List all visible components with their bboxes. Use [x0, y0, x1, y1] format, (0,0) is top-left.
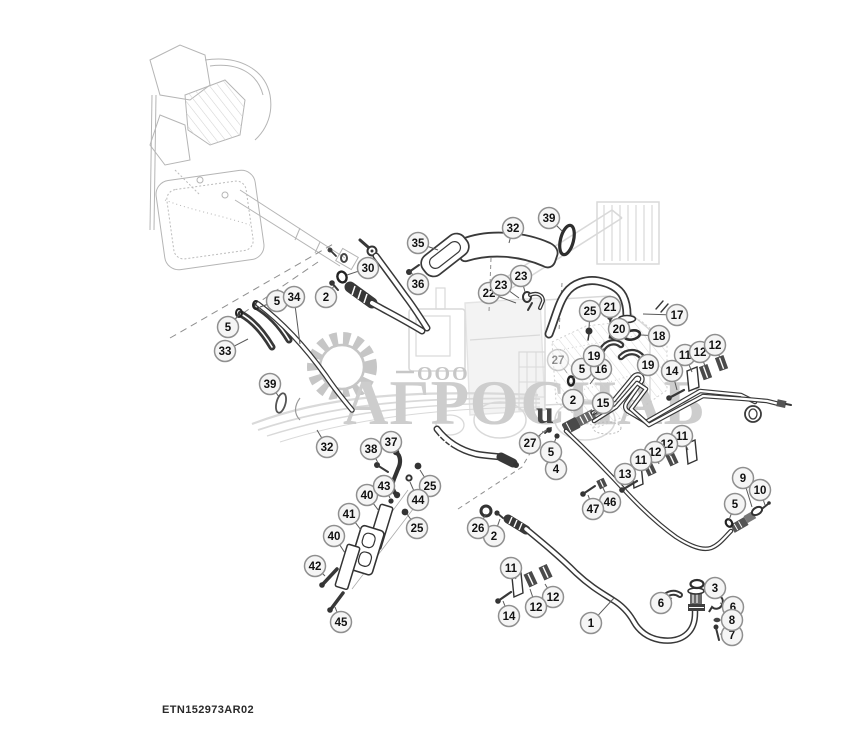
diagram-canvas: ООО АГРОСНАБ u: [0, 0, 841, 731]
callout-number: 41: [343, 509, 356, 521]
callout-number: 27: [552, 355, 565, 367]
callout-leader: [420, 470, 424, 477]
callout-20: 20: [609, 319, 630, 340]
washer-5: [554, 433, 559, 438]
callout-number: 23: [515, 271, 528, 283]
nut-43: [388, 498, 393, 503]
callout-number: 40: [361, 490, 374, 502]
callout-11: 11: [501, 558, 522, 580]
callout-number: 25: [411, 523, 424, 535]
callout-19: 19: [584, 346, 606, 367]
callout-leader: [603, 488, 605, 493]
callout-2: 2: [316, 286, 337, 308]
callout-3: 3: [704, 578, 726, 599]
rod-45: [331, 593, 343, 609]
callout-39: 39: [260, 374, 281, 398]
callout-leader: [503, 601, 505, 606]
callout-number: 6: [658, 598, 664, 610]
callout-number: 1: [588, 618, 595, 630]
callout-42: 42: [305, 556, 326, 577]
callout-leader: [410, 482, 414, 490]
callout-number: 5: [274, 296, 281, 308]
clamp-plate-11: [687, 367, 699, 391]
callout-number: 37: [385, 437, 398, 449]
callout-number: 42: [309, 561, 322, 573]
callout-number: 4: [553, 464, 560, 476]
callout-45: 45: [331, 607, 352, 633]
callout-5: 5: [725, 494, 746, 521]
callout-number: 25: [424, 481, 437, 493]
nut-25: [415, 463, 422, 470]
callout-1: 1: [581, 598, 615, 634]
callout-number: 17: [671, 310, 684, 322]
callout-36: 36: [408, 272, 429, 295]
callout-number: 8: [729, 615, 736, 627]
callout-number: 2: [323, 292, 329, 304]
callout-number: 32: [321, 442, 334, 454]
callout-number: 47: [587, 504, 600, 516]
callout-number: 38: [365, 444, 378, 456]
callout-number: 12: [530, 602, 543, 614]
callout-leader: [598, 598, 614, 615]
callout-39: 39: [539, 208, 563, 232]
callout-number: 30: [362, 263, 375, 275]
callout-number: 2: [570, 395, 576, 407]
callout-25: 25: [407, 514, 428, 539]
callout-number: 45: [335, 617, 348, 629]
callout-number: 33: [219, 346, 232, 358]
callout-number: 5: [225, 322, 232, 334]
clamp-ring-30: [336, 270, 348, 283]
callout-number: 5: [548, 447, 555, 459]
callout-leader: [643, 314, 667, 315]
callout-number: 35: [412, 238, 425, 250]
callout-number: 25: [584, 306, 597, 318]
callout-leader: [530, 589, 533, 597]
callout-19: 19: [638, 355, 659, 376]
callout-number: 26: [472, 523, 485, 535]
callout-5: 5: [541, 438, 562, 463]
callout-leader: [373, 503, 379, 511]
watermark-stray-letter: u: [536, 394, 554, 430]
washer-8: [714, 618, 721, 622]
callout-leader: [276, 393, 279, 397]
callout-number: 34: [288, 292, 301, 304]
callout-number: 5: [579, 364, 586, 376]
callout-26: 26: [468, 514, 489, 539]
callout-21: 21: [600, 297, 621, 320]
callout-number: 14: [666, 366, 679, 378]
callout-13: 13: [615, 464, 636, 485]
callout-number: 5: [732, 499, 739, 511]
bolt-10: [767, 501, 771, 505]
callout-number: 40: [328, 531, 341, 543]
callout-number: 19: [588, 351, 601, 363]
callout-33: 33: [215, 339, 249, 362]
callout-25: 25: [580, 301, 601, 329]
callout-leader: [335, 607, 337, 612]
callout-leader: [340, 545, 345, 553]
callout-number: 39: [543, 213, 556, 225]
engine-sketch: [150, 45, 358, 272]
callout-number: 32: [507, 223, 520, 235]
callout-number: 23: [495, 280, 508, 292]
callout-number: 18: [653, 331, 666, 343]
callout-number: 46: [604, 497, 617, 509]
callout-leader: [510, 291, 520, 298]
hose-1: [526, 529, 695, 641]
callout-40: 40: [324, 526, 346, 554]
callout-number: 20: [613, 324, 626, 336]
washer-44: [406, 475, 411, 480]
callout-number: 7: [729, 630, 735, 642]
tube-end-fitting: [776, 399, 786, 408]
callout-number: 27: [524, 438, 537, 450]
callout-number: 10: [754, 485, 767, 497]
callout-23: 23: [511, 266, 532, 293]
callout-number: 3: [712, 583, 718, 595]
rod-42: [323, 569, 337, 584]
callout-number: 2: [491, 531, 497, 543]
callout-leader: [234, 339, 248, 346]
callout-leader: [347, 271, 358, 275]
fitting-9: [750, 505, 763, 517]
callout-10: 10: [750, 480, 771, 506]
callout-5: 5: [218, 315, 240, 338]
callout-number: 12: [547, 592, 560, 604]
callout-number: 9: [740, 473, 746, 485]
callout-2: 2: [563, 390, 584, 411]
callout-leader: [556, 225, 562, 231]
callout-37: 37: [381, 432, 402, 454]
parts-diagram-page: ООО АГРОСНАБ u: [0, 0, 841, 731]
callout-6: 6: [651, 593, 673, 614]
callout-leader: [524, 286, 526, 292]
callout-14: 14: [499, 601, 520, 627]
callout-38: 38: [361, 439, 382, 464]
callout-number: 15: [597, 398, 610, 410]
callout-41: 41: [339, 504, 362, 531]
callout-leader: [763, 500, 765, 505]
callout-leader: [498, 519, 501, 526]
callout-number: 36: [412, 279, 425, 291]
callout-number: 43: [378, 481, 391, 493]
callout-number: 14: [503, 611, 516, 623]
callout-number: 12: [709, 340, 722, 352]
callout-8: 8: [721, 610, 743, 631]
callout-number: 19: [642, 360, 655, 372]
callout-32: 32: [317, 430, 338, 458]
callout-number: 11: [505, 563, 518, 575]
callout-number: 44: [412, 495, 425, 507]
callout-number: 11: [635, 455, 648, 467]
callout-number: 39: [264, 379, 277, 391]
drawing-id-label: ETN152973AR02: [162, 704, 254, 716]
callout-number: 21: [604, 302, 617, 314]
oring-3: [691, 580, 704, 588]
callout-leader: [355, 522, 361, 530]
callout-number: 13: [619, 469, 632, 481]
